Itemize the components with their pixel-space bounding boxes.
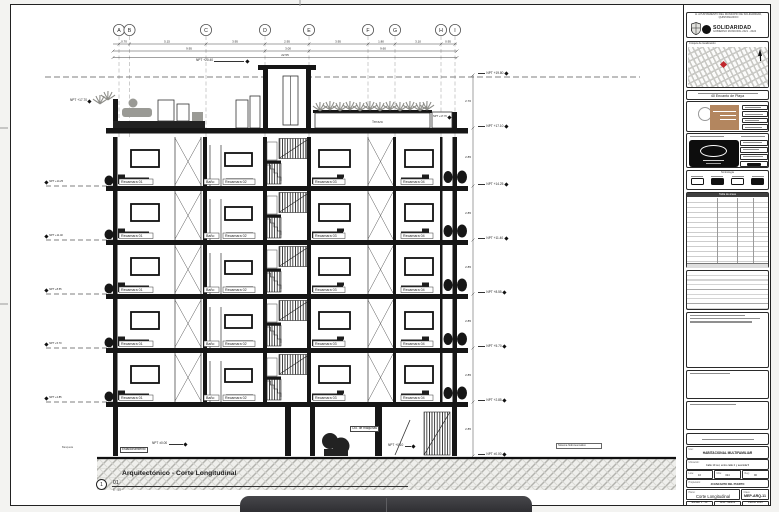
svg-text:1.80: 1.80 xyxy=(378,40,384,44)
svg-text:3.95: 3.95 xyxy=(335,40,341,44)
info-field xyxy=(742,111,768,117)
signature-box xyxy=(686,401,769,430)
sheet-code: MEP-ARQ-11 xyxy=(742,494,768,498)
room-label: Cto. de máquinas xyxy=(350,426,379,432)
drawing-scale: 1 : 50 xyxy=(113,489,121,493)
level-tag: NPT +8.55 xyxy=(478,291,506,295)
info-field xyxy=(740,147,768,153)
sheet-code-cell: Clave: MEP-ARQ-11 xyxy=(741,489,769,500)
signature-field xyxy=(740,161,768,167)
top-dimension-values: 0.705.15 3.952.95 3.951.80 3.100.95 9.95… xyxy=(121,40,451,58)
shield-logo-icon xyxy=(691,22,701,35)
areas-table-title: Tabla de áreas xyxy=(687,193,768,197)
location-cell: Ubicación: Calle 10 sur, entre calle 2 y… xyxy=(686,459,769,470)
symbols-title: Simbología xyxy=(687,172,768,175)
svg-text:2.85: 2.85 xyxy=(465,155,471,159)
level-tag: NPT ±0.00 xyxy=(478,453,506,457)
titleblock-row xyxy=(686,433,769,445)
svg-text:2.85: 2.85 xyxy=(465,319,471,323)
svg-text:D: D xyxy=(263,28,267,34)
building-section xyxy=(93,65,676,490)
left-level-lines xyxy=(46,186,113,402)
svg-text:H: H xyxy=(439,28,443,34)
project-use-cell: Uso: HABITACIONAL MULTIFAMILIAR xyxy=(686,446,769,459)
owner-cell: Propietario: 40 ENCANTO DEL PUERTO xyxy=(686,479,769,488)
north-arrow-icon xyxy=(758,49,762,56)
svg-text:2.85: 2.85 xyxy=(465,211,471,215)
scale-cell: Escala: 1 : 50 xyxy=(686,501,713,506)
svg-text:2.95: 2.95 xyxy=(284,40,290,44)
column-divider xyxy=(683,4,684,506)
svg-text:F: F xyxy=(366,28,369,34)
info-field xyxy=(742,124,768,130)
svg-text:E: E xyxy=(307,28,311,34)
ground-floor xyxy=(113,407,457,456)
svg-text:3.10: 3.10 xyxy=(415,40,421,44)
level-tag: NPT +17.70 xyxy=(70,99,91,103)
notes-box xyxy=(686,270,769,310)
room-label: Estacionamiento xyxy=(120,447,148,453)
site-photo-box xyxy=(686,133,769,168)
level-tag: NPT +14.25 xyxy=(478,183,508,187)
right-dimension xyxy=(472,74,475,458)
areas-table-total-row xyxy=(687,263,768,268)
project-name-box: 40 Encanto de Playa xyxy=(686,90,769,100)
level-tag: NPT +8.55 xyxy=(45,289,62,292)
terrace-label: Terraza xyxy=(372,121,383,125)
seal-icon xyxy=(702,25,711,34)
level-tag: NPT +19.80 xyxy=(478,72,508,76)
svg-text:I: I xyxy=(454,28,455,34)
title-underline xyxy=(112,486,408,487)
legend-item xyxy=(751,176,764,185)
svg-text:0.95: 0.95 xyxy=(445,40,451,44)
svg-text:0.70: 0.70 xyxy=(121,40,127,44)
location-map xyxy=(688,47,768,87)
project-use: HABITACIONAL MULTIFAMILIAR xyxy=(687,452,768,456)
level-tag: NPT +17.10 xyxy=(478,125,508,129)
owner-name: 40 ENCANTO DEL PUERTO xyxy=(687,484,768,487)
north-arrow-tail xyxy=(760,56,761,61)
bottom-overlay-bar[interactable] xyxy=(240,496,532,512)
lot-cell: Lote: 10 xyxy=(686,470,713,479)
legend-item xyxy=(731,176,744,185)
svg-text:C: C xyxy=(204,28,208,34)
svg-text:2.85: 2.85 xyxy=(465,373,471,377)
drawing-number: 01 xyxy=(113,480,119,486)
symbols-box: Simbología xyxy=(686,170,769,190)
areas-table: Tabla de áreas xyxy=(686,192,769,268)
header-top-text: H. AYUNTAMIENTO DEL MUNICIPIO DE SOLIDAR… xyxy=(689,14,768,20)
svg-text:9.60: 9.60 xyxy=(380,47,386,51)
annotation-label: Banqueta xyxy=(62,447,73,450)
info-field xyxy=(740,140,768,146)
svg-text:2.70: 2.70 xyxy=(465,99,471,103)
map-label: Croquis de localización xyxy=(689,43,716,46)
viewport-number-bubble: 1 xyxy=(96,479,107,490)
legend-item xyxy=(691,176,704,185)
level-tag: NPT +20.40 xyxy=(196,59,249,63)
date-cell: Fecha: 2023 xyxy=(742,501,769,506)
svg-text:A: A xyxy=(117,28,121,34)
level-tag: NPT ±0.00 xyxy=(152,442,187,446)
level-tag: NPT +2.85 xyxy=(45,397,62,400)
grid-bubbles: A B C D E F G H I xyxy=(113,24,460,35)
level-tag: NPT +5.70 xyxy=(478,345,506,349)
svg-text:5.15: 5.15 xyxy=(164,40,170,44)
level-tag: NPT +2.85 xyxy=(478,399,506,403)
info-field xyxy=(740,154,768,160)
svg-text:22.55: 22.55 xyxy=(281,53,289,57)
roof-terrace xyxy=(113,96,260,128)
location-text: Calle 10 sur, entre calle 2 y avenida 5 xyxy=(687,465,768,468)
sheet-name: Corte Longitudinal xyxy=(687,494,739,499)
info-field xyxy=(742,118,768,124)
right-dimension-values: 2.702.85 2.852.85 2.852.85 2.85 xyxy=(465,99,471,431)
legend-item xyxy=(711,176,724,185)
info-field xyxy=(742,105,768,111)
svg-text:G: G xyxy=(393,28,397,34)
units-cell: Acot.: Metros xyxy=(714,501,741,506)
stair-bulkhead xyxy=(258,65,316,128)
sheet-name-cell: Plano: Corte Longitudinal xyxy=(686,489,740,500)
level-tag: NPT +17.70 xyxy=(433,116,451,119)
svg-text:2.85: 2.85 xyxy=(465,265,471,269)
svg-text:2.85: 2.85 xyxy=(465,427,471,431)
block-cell: Mza: 024 xyxy=(714,470,741,479)
firm-logo xyxy=(710,105,739,130)
firm-logo-box xyxy=(686,101,769,132)
drawing-title: Arquitectónico - Corte Longitudinal xyxy=(122,470,236,478)
svg-text:3.95: 3.95 xyxy=(232,40,238,44)
site-marker-icon xyxy=(720,61,727,68)
section-drawing: Recamara 01 Baño Recamara 02 Recamara 03… xyxy=(0,0,683,512)
level-tag: NPT +11.40 xyxy=(45,235,63,238)
level-tag: NPT +0.10 xyxy=(388,444,415,448)
level-tag: NPT +5.70 xyxy=(45,343,62,346)
project-name: 40 Encanto de Playa xyxy=(687,94,768,98)
areas-table-rows xyxy=(687,198,768,264)
region-cell: Reg.: 90 xyxy=(742,470,769,479)
architectural-sheet-view: Recamara 01 Baño Recamara 02 Recamara 03… xyxy=(0,0,779,512)
location-map-box: Croquis de localización xyxy=(686,41,769,88)
svg-text:3.00: 3.00 xyxy=(285,47,291,51)
municipality-tagline: GOBIERNO MUNICIPAL 2021 - 2024 xyxy=(713,31,756,34)
level-tag: NPT +11.40 xyxy=(478,237,507,241)
annotation-label: Sistema hidroneumático xyxy=(556,443,602,449)
level-tag: NPT +14.25 xyxy=(45,181,63,184)
svg-text:9.95: 9.95 xyxy=(186,47,192,51)
svg-text:B: B xyxy=(128,28,132,34)
municipal-header: H. AYUNTAMIENTO DEL MUNICIPIO DE SOLIDAR… xyxy=(686,12,769,38)
signature-box xyxy=(686,370,769,399)
site-photo xyxy=(689,140,739,167)
notes-box xyxy=(686,312,769,368)
